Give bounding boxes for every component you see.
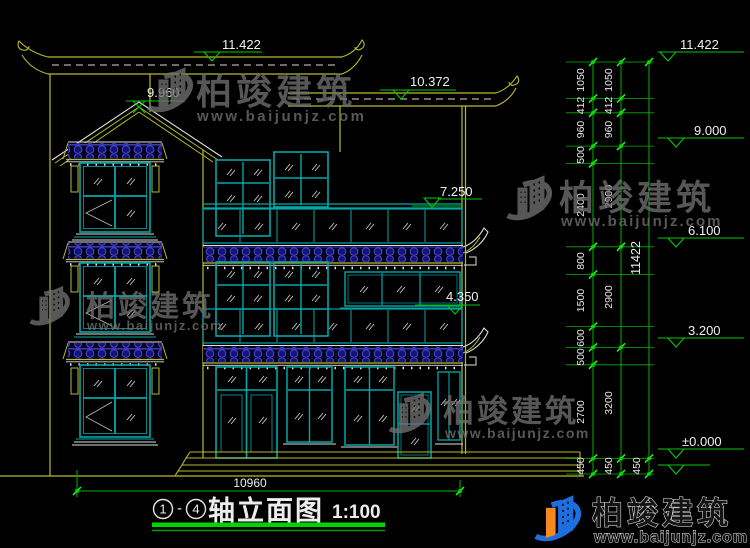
dim-value: 2900: [603, 285, 615, 309]
elevation-marker-right-9000: 9.000: [658, 123, 744, 147]
watermark-brand: 柏竣建筑: [443, 394, 579, 429]
watermark-top: 柏竣建筑 www.baijunjz.com: [138, 67, 367, 125]
axis-number-end: 4: [192, 502, 199, 517]
second-floor-windows: [203, 262, 462, 343]
cad-elevation-screenshot: 11.422 10.372 9.960 7.250 4.350: [0, 0, 750, 548]
footer-logo-orange-accent: [546, 508, 555, 538]
bay-canopy-level-2: [63, 242, 167, 265]
title-underline: [152, 523, 385, 528]
watermark-brand: 柏竣建筑: [559, 178, 715, 218]
drawing-title: 轴立面图: [208, 495, 324, 526]
dim-value: 960: [575, 121, 587, 139]
entrance-steps: [175, 452, 580, 476]
watermark-url: www.baijunjz.com: [444, 425, 590, 441]
bay-window-level-1: [71, 365, 159, 445]
marker-label: ±0.000: [682, 434, 722, 449]
watermark-brand: 柏竣建筑: [196, 71, 356, 112]
dim-value: 412: [603, 97, 615, 115]
axis-number-start: 1: [159, 502, 166, 517]
dim-value: 500: [575, 146, 587, 164]
elevation-marker-right-3200: 3.200: [658, 323, 744, 347]
elevation-drawing: 11.422 10.372 9.960 7.250 4.350: [0, 0, 750, 548]
eave-band-lower: [203, 328, 488, 368]
watermark-right: 柏竣建筑 www.baijunjz.com: [497, 175, 723, 230]
dim-total-width: 10960: [73, 470, 464, 497]
marker-label: 7.250: [440, 184, 473, 199]
bay-canopy-level-1: [63, 342, 167, 365]
dim-chain-b: 1050 412 960 2900 2900 3200 450: [603, 68, 615, 475]
marker-label: 9.000: [694, 123, 727, 138]
dim-value: 1050: [603, 68, 615, 92]
dim-value: 3200: [603, 391, 615, 415]
footer-logo: 柏竣建筑 www.baijunjz.com: [525, 495, 748, 546]
footer-url: www.baijunjz.com: [593, 529, 748, 546]
watermark-url: www.baijunjz.com: [86, 318, 223, 333]
dim-value: 800: [575, 252, 587, 270]
marker-label: 10.372: [410, 74, 450, 89]
elevation-marker-right-ground: ±0.000: [658, 434, 744, 474]
roof-top: [18, 40, 364, 74]
dim-chain-c: 11422 450: [629, 241, 643, 475]
marker-label: 11.422: [222, 37, 261, 52]
bay-canopy-level-3: [63, 142, 167, 165]
dim-value: 450: [631, 457, 643, 475]
watermark-url: www.baijunjz.com: [196, 108, 366, 125]
dim-value: 500: [575, 348, 587, 366]
marker-label: 4.350: [446, 289, 479, 304]
elevation-marker-right-top: 11.422: [658, 37, 744, 61]
watermark-left: 柏竣建筑 www.baijunjz.com: [21, 286, 223, 333]
drawing-scale: 1:100: [332, 502, 381, 523]
dim-value: 1500: [575, 289, 587, 313]
dim-width-label: 10960: [233, 476, 267, 490]
elevation-marker-second-roof: 10.372: [380, 74, 456, 99]
axis-separator: -: [177, 500, 182, 517]
bay-window-level-3: [71, 163, 159, 240]
title-block: 1 - 4 轴立面图 1:100: [152, 495, 385, 531]
marker-label: 3.200: [688, 323, 721, 338]
dim-value: 412: [575, 97, 587, 115]
dim-total-height: 11422: [629, 241, 643, 275]
dim-value: 450: [603, 457, 615, 475]
dim-value: 450: [575, 457, 587, 475]
dim-value: 1050: [575, 68, 587, 92]
dim-value: 960: [603, 121, 615, 139]
watermark-url: www.baijunjz.com: [560, 213, 722, 230]
watermark-bottom: 柏竣建筑 www.baijunjz.com: [380, 392, 590, 441]
dim-value: 600: [575, 329, 587, 347]
marker-label: 11.422: [680, 37, 719, 52]
footer-brand: 柏竣建筑: [592, 496, 732, 531]
